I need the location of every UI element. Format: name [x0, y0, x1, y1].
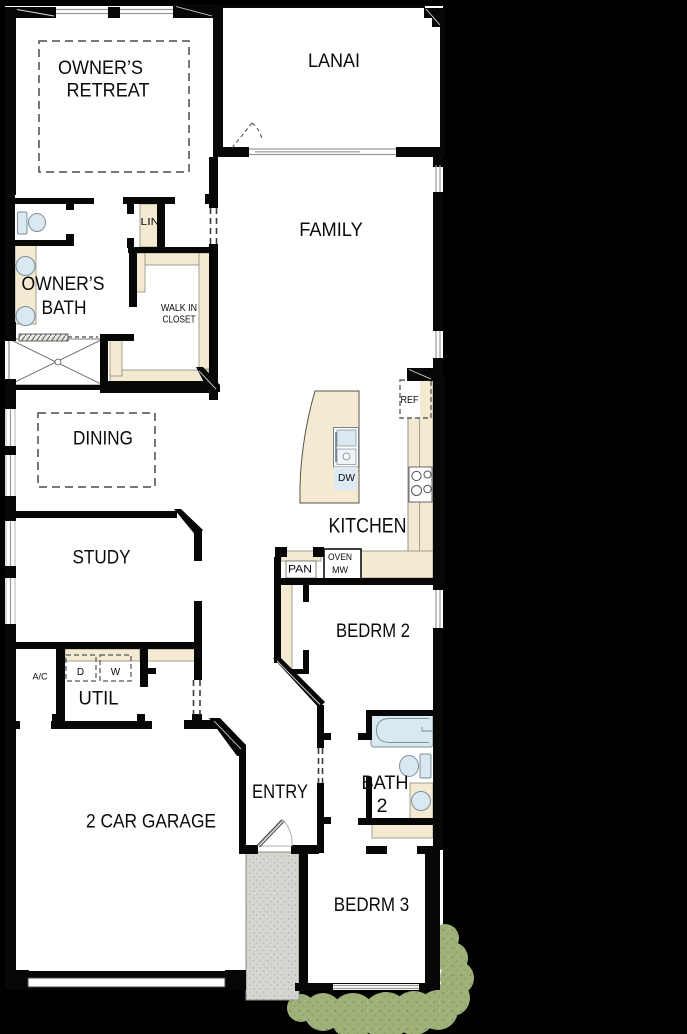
- svg-text:BATH: BATH: [362, 772, 409, 794]
- svg-text:OVEN: OVEN: [328, 552, 352, 563]
- svg-text:2 CAR GARAGE: 2 CAR GARAGE: [86, 811, 216, 833]
- svg-text:MW: MW: [332, 565, 348, 576]
- svg-text:FAMILY: FAMILY: [299, 219, 363, 241]
- svg-text:LANAI: LANAI: [308, 50, 360, 72]
- svg-text:DW: DW: [338, 473, 356, 484]
- svg-text:2: 2: [377, 795, 388, 817]
- svg-text:DINING: DINING: [73, 428, 133, 450]
- svg-text:BATH: BATH: [42, 297, 87, 319]
- svg-text:A/C: A/C: [32, 672, 48, 682]
- svg-text:PAN: PAN: [288, 564, 312, 576]
- svg-text:WALK IN: WALK IN: [161, 302, 197, 314]
- svg-text:RETREAT: RETREAT: [67, 80, 150, 102]
- svg-text:OWNER’S: OWNER’S: [58, 57, 143, 79]
- svg-text:D: D: [77, 667, 84, 678]
- svg-text:ENTRY: ENTRY: [252, 781, 308, 803]
- svg-text:LIN: LIN: [141, 217, 160, 228]
- svg-text:STUDY: STUDY: [73, 547, 131, 569]
- svg-text:KITCHEN: KITCHEN: [329, 515, 407, 538]
- svg-text:UTIL: UTIL: [79, 688, 119, 710]
- svg-text:BEDRM 3: BEDRM 3: [334, 894, 410, 916]
- svg-text:REF: REF: [401, 395, 419, 406]
- svg-text:CLOSET: CLOSET: [163, 314, 196, 326]
- svg-text:W: W: [111, 667, 121, 678]
- svg-text:BEDRM 2: BEDRM 2: [336, 620, 410, 642]
- svg-text:OWNER’S: OWNER’S: [22, 273, 105, 295]
